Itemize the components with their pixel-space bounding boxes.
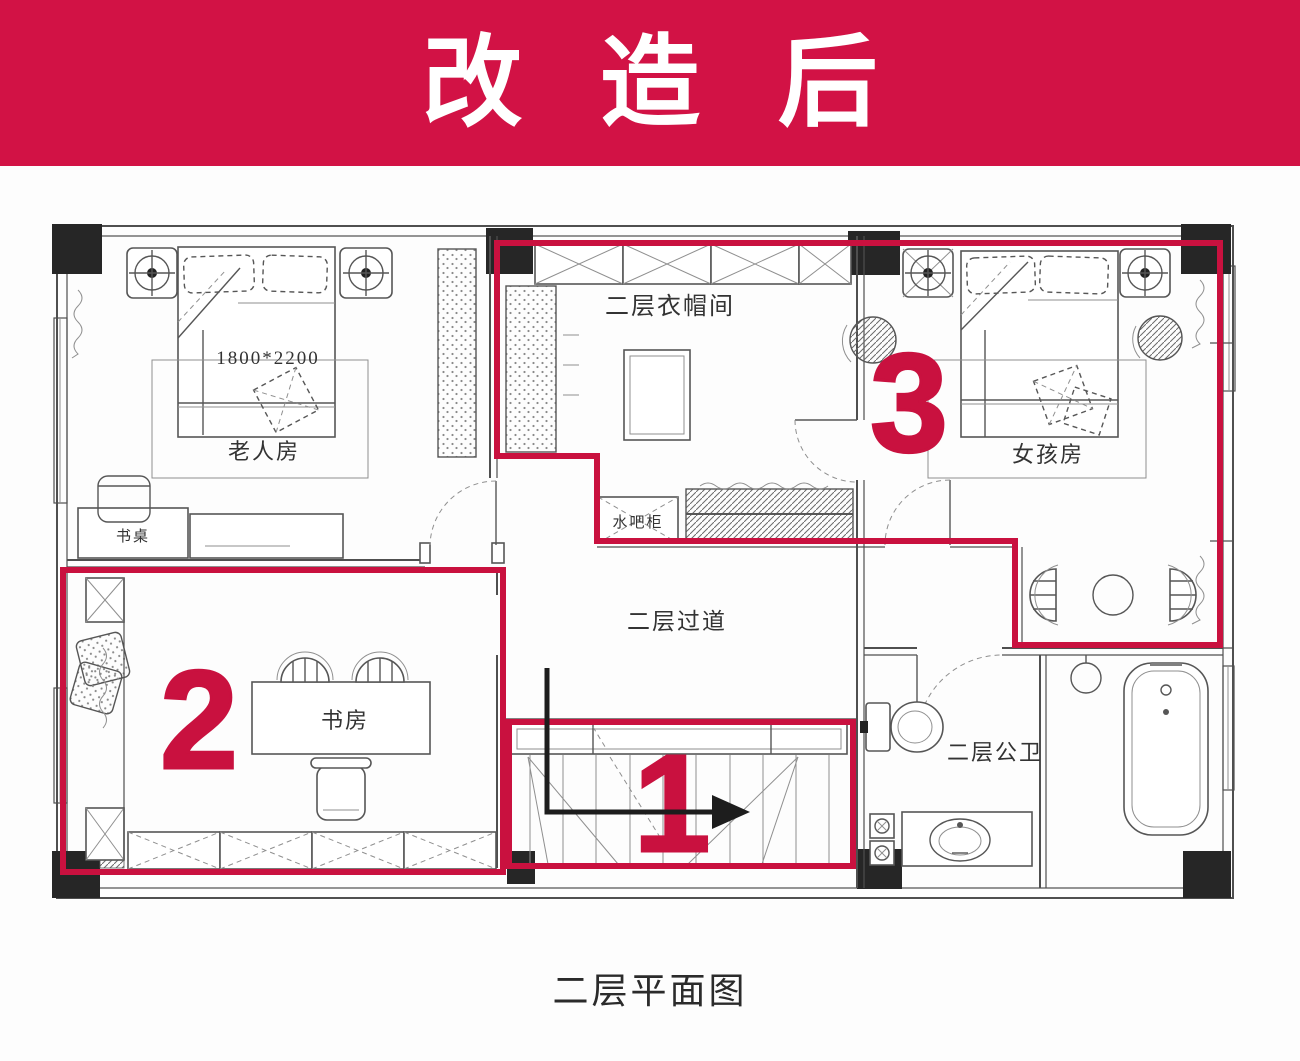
- wall-cabinet: [86, 578, 124, 860]
- switch-boxes: [870, 814, 894, 865]
- direction-arrow-head: [712, 795, 750, 829]
- girl-room-label: 女孩房: [1012, 442, 1084, 467]
- island-cabinet: [624, 350, 690, 440]
- pendant-light-icon: [1071, 655, 1101, 693]
- ottoman: [1133, 316, 1182, 360]
- bed-size-label: 1800*2200: [216, 348, 320, 369]
- door-elder-room: [430, 481, 496, 545]
- elder-room-label: 老人房: [228, 439, 300, 464]
- water-bar-label: 水吧柜: [612, 514, 663, 531]
- cloakroom-label: 二层衣帽间: [605, 293, 735, 320]
- desk-chair: [311, 758, 371, 820]
- column: [1181, 224, 1231, 274]
- column: [1183, 851, 1231, 898]
- nightstand: [340, 248, 392, 298]
- floor-plan: 1800*2200 老人房 书桌: [0, 0, 1300, 1061]
- marker-1: 1: [634, 727, 711, 881]
- toilet: [860, 702, 943, 752]
- bed: [961, 251, 1118, 437]
- nightstand: [903, 249, 953, 297]
- sitting-area: [1030, 565, 1196, 625]
- bottom-cabinets: [128, 832, 496, 869]
- fan-chair: [1168, 565, 1196, 625]
- window-left-upper: [54, 318, 67, 503]
- nightstand: [1120, 249, 1170, 297]
- vanity-sink: [902, 812, 1032, 866]
- corridor: 二层过道: [627, 609, 727, 634]
- door-girl-room: [885, 480, 950, 545]
- desk-area: 书桌: [78, 476, 343, 558]
- bench: [686, 483, 853, 539]
- corridor-label: 二层过道: [627, 609, 727, 634]
- window-squiggle: [1192, 280, 1204, 348]
- door-cloakroom: [795, 420, 857, 482]
- bathtub: [1124, 663, 1208, 835]
- desk-chair: [277, 652, 333, 682]
- desk-label: 书桌: [116, 528, 150, 545]
- elder-room: 1800*2200 老人房 书桌: [78, 247, 476, 558]
- top-cabinets: [535, 244, 851, 284]
- cloakroom: 水吧柜 二层衣帽间: [506, 244, 896, 543]
- nightstand: [127, 248, 177, 298]
- page: 改 造 后: [0, 0, 1300, 1061]
- round-table: [1093, 575, 1133, 615]
- study-label: 书房: [321, 708, 369, 733]
- column: [52, 224, 102, 274]
- water-bar: 水吧柜: [598, 497, 678, 543]
- column: [486, 228, 533, 274]
- bathroom: 二层公卫: [860, 655, 1234, 866]
- plan-caption: 二层平面图: [0, 962, 1300, 1014]
- marker-2: 2: [160, 641, 238, 798]
- fan-chair: [1030, 565, 1058, 625]
- wardrobe: [506, 286, 556, 452]
- window-squiggle: [72, 290, 82, 358]
- bed: [178, 247, 335, 437]
- marker-3: 3: [870, 324, 948, 481]
- desk-chair: [352, 652, 408, 682]
- bathroom-label: 二层公卫: [947, 740, 1043, 765]
- column: [848, 231, 900, 275]
- wardrobe: [438, 249, 476, 457]
- study: 书房: [69, 578, 496, 869]
